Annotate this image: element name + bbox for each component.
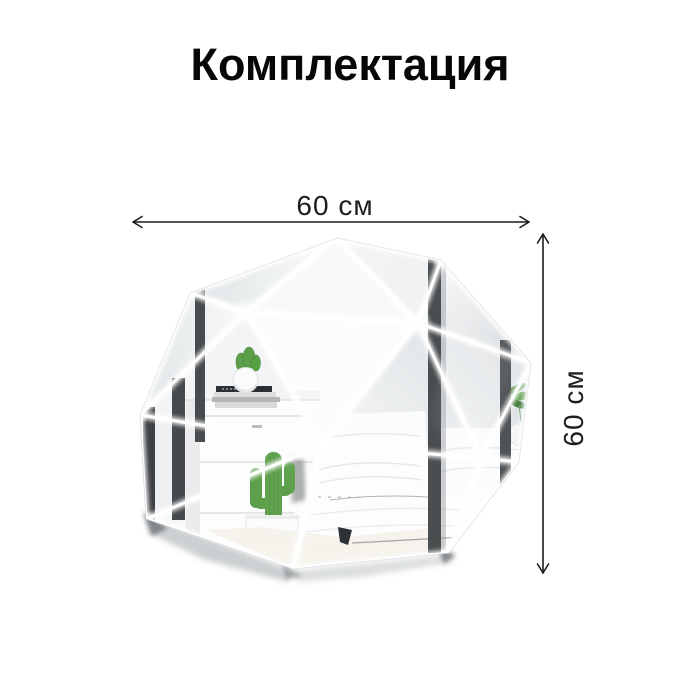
width-dimension-label: 60 см	[255, 190, 415, 222]
height-arrow	[538, 234, 549, 573]
mirror-graphic	[0, 0, 700, 700]
page-title: Комплектация	[0, 40, 700, 90]
product-infographic: Комплектация 60 см 60 см	[0, 0, 700, 700]
height-dimension-label: 60 см	[558, 328, 590, 488]
reflection-scene	[143, 238, 535, 569]
round-pot	[233, 368, 258, 393]
